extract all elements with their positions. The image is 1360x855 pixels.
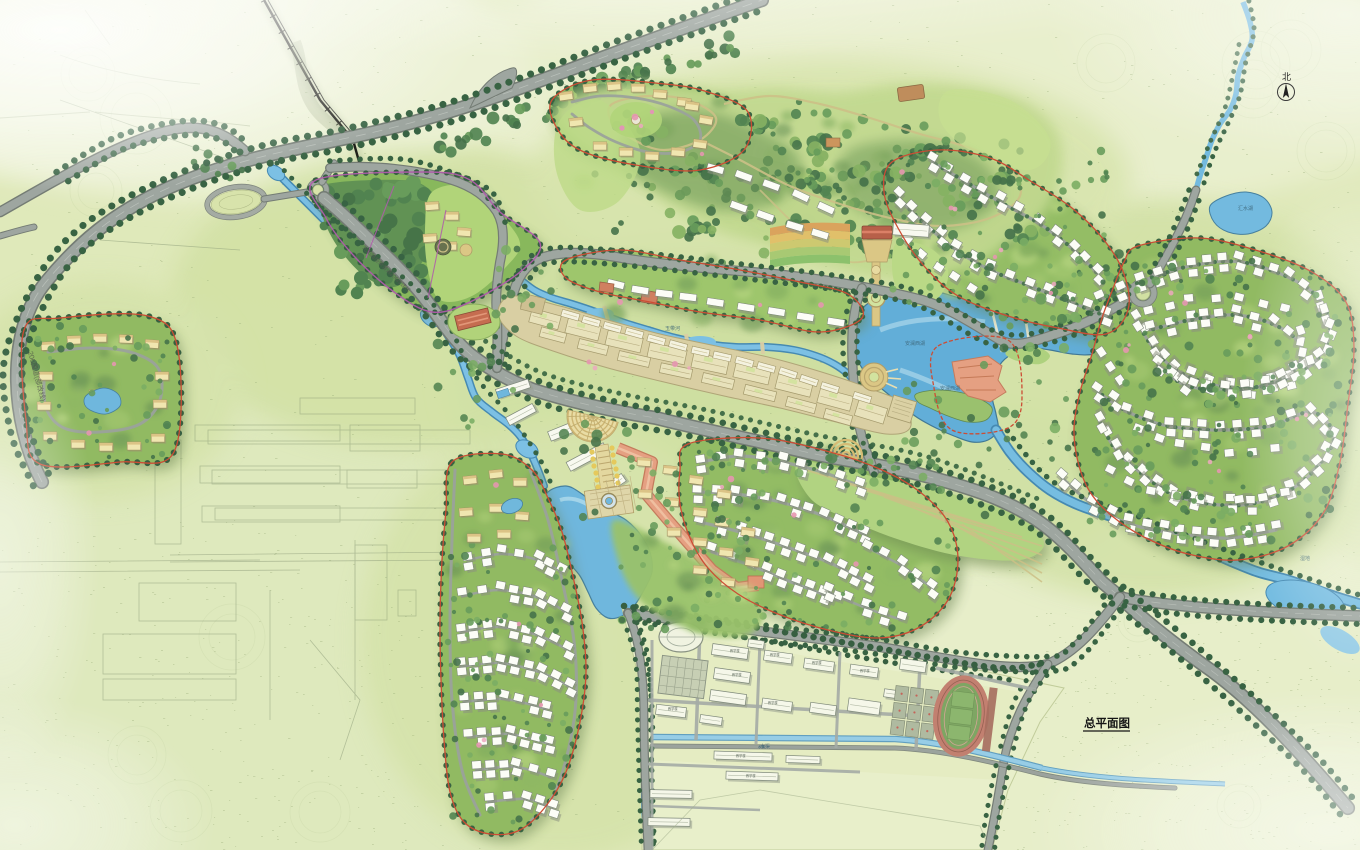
svg-text:北: 北 bbox=[1282, 72, 1291, 82]
svg-text:总平面图: 总平面图 bbox=[1084, 716, 1130, 730]
